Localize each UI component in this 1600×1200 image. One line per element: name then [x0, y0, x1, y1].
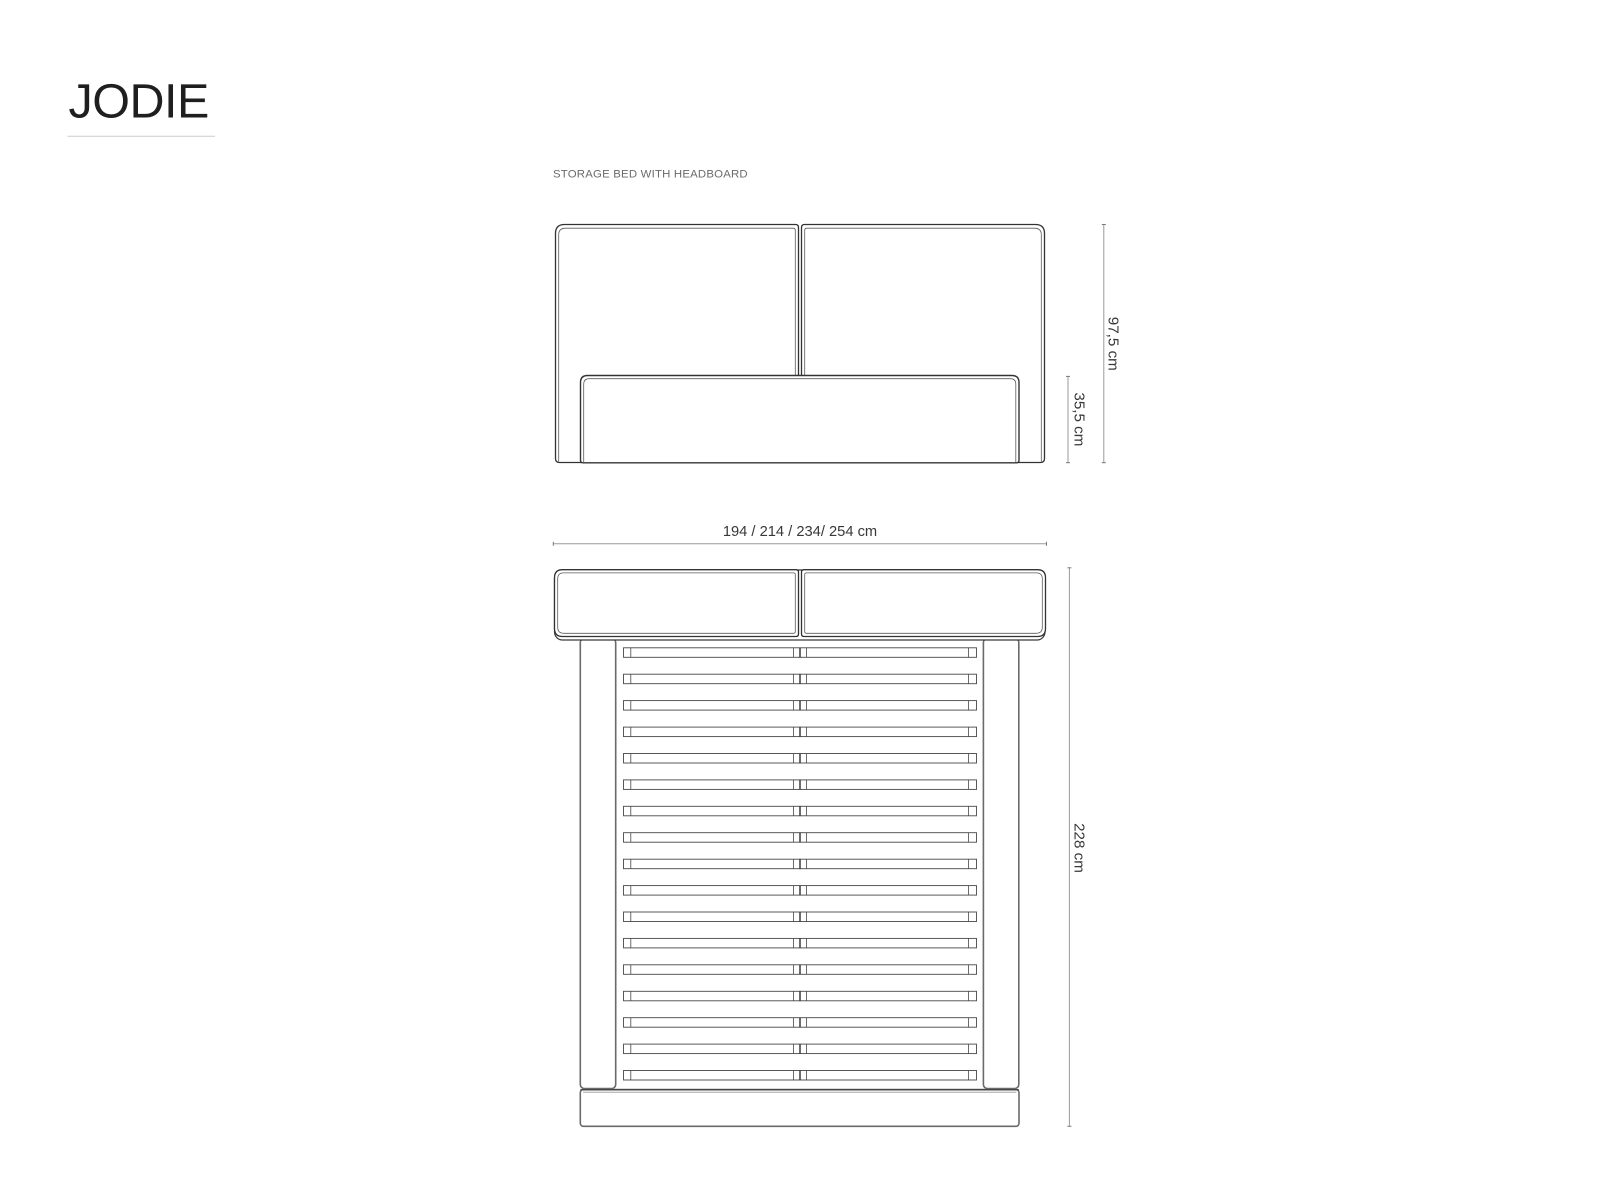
svg-text:JODIE: JODIE	[69, 75, 209, 129]
svg-text:228 cm: 228 cm	[1070, 823, 1087, 873]
svg-text:97,5 cm: 97,5 cm	[1105, 317, 1122, 371]
svg-text:194 / 214 / 234/ 254 cm: 194 / 214 / 234/ 254 cm	[723, 524, 877, 540]
svg-text:STORAGE BED WITH HEADBOARD: STORAGE BED WITH HEADBOARD	[553, 169, 748, 181]
svg-text:35,5 cm: 35,5 cm	[1071, 392, 1088, 446]
